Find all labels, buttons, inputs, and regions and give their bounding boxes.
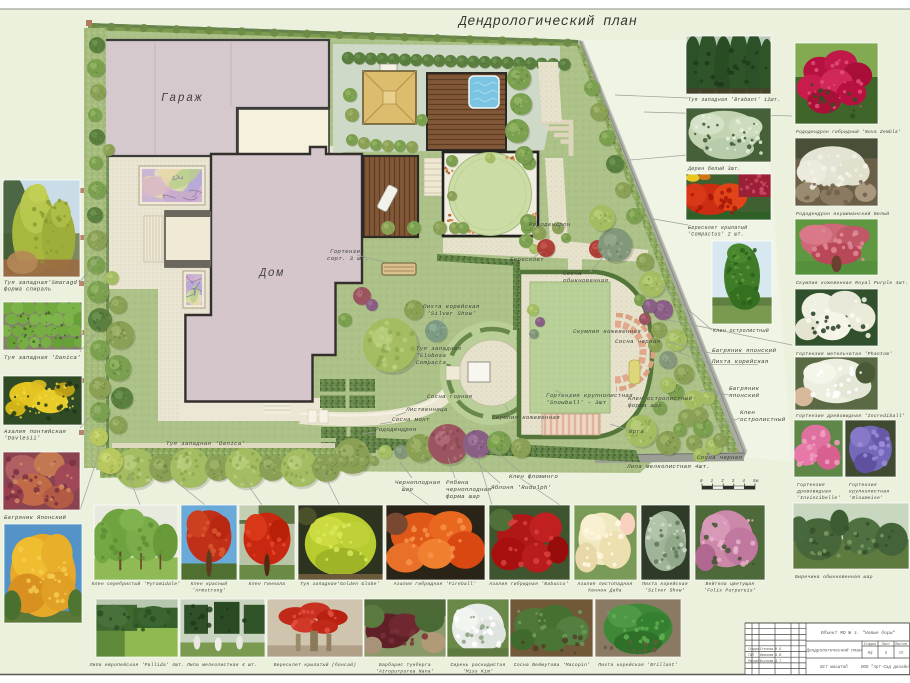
svg-text:Гортензия древовидная 'Incredi: Гортензия древовидная 'Incrediball' [796, 413, 905, 419]
svg-text:Иванова А.В.: Иванова А.В. [760, 653, 783, 657]
svg-text:Рододендрон якушиманский Белый: Рододендрон якушиманский Белый [796, 210, 889, 217]
svg-text:Лист: Лист [881, 643, 890, 647]
svg-text:Рододендрон: Рододендрон [375, 426, 417, 433]
svg-text:Черноплодная: Черноплодная [395, 479, 441, 486]
svg-text:Разраб: Разраб [748, 659, 760, 663]
svg-text:Сосна черная: Сосна черная [615, 338, 661, 345]
svg-text:'Miss Kim': 'Miss Kim' [463, 668, 494, 674]
svg-text:2: 2 [721, 480, 724, 484]
svg-text:крупнолистная: крупнолистная [849, 489, 889, 494]
svg-text:Клен серебристый 'Pyramidale': Клен серебристый 'Pyramidale' [92, 580, 181, 587]
svg-text:Сосна: Сосна [563, 270, 582, 277]
svg-text:Вейгела цветущая: Вейгела цветущая [706, 580, 755, 587]
svg-text:0: 0 [700, 480, 703, 484]
svg-text:Туя западная 'Danica': Туя западная 'Danica' [4, 354, 81, 361]
svg-text:обыкновенная: обыкновенная [563, 277, 609, 284]
svg-text:Ирга: Ирга [629, 428, 644, 435]
svg-text:Бересклет крылатый: Бересклет крылатый [688, 224, 747, 231]
svg-text:Юсупова Д.Т.: Юсупова Д.Т. [759, 659, 783, 663]
svg-text:Туя западная 'Danica': Туя западная 'Danica' [166, 440, 245, 447]
svg-text:форма шар: форма шар [628, 402, 662, 409]
svg-text:'Folis Purpureis': 'Folis Purpureis' [704, 587, 756, 593]
svg-text:Багряник японский: Багряник японский [712, 347, 776, 354]
svg-text:Азалия листопадная: Азалия листопадная [576, 581, 632, 587]
svg-text:форма спираль: форма спираль [4, 285, 52, 292]
svg-text:Клен остролистный: Клен остролистный [713, 327, 769, 334]
svg-text:'Compactus' 2 шт.: 'Compactus' 2 шт. [688, 231, 744, 237]
svg-text:Гараж: Гараж [161, 92, 203, 105]
svg-text:Гортензия метельчатая 'Phantom: Гортензия метельчатая 'Phantom' [796, 351, 893, 357]
svg-text:'Atropurpurea Nana': 'Atropurpurea Nana' [376, 668, 434, 674]
svg-text:'Invincibelle': 'Invincibelle' [797, 495, 841, 501]
svg-text:Туя западная 'Brabant' 12шт.: Туя западная 'Brabant' 12шт. [688, 97, 780, 103]
svg-text:Гортензия: Гортензия [849, 482, 877, 488]
svg-text:ООО "Арт-Сад дизайн": ООО "Арт-Сад дизайн" [861, 665, 910, 670]
svg-text:Дендрологический план: Дендрологический план [805, 649, 862, 654]
svg-text:АД: АД [867, 652, 873, 656]
svg-text:Сосна черная: Сосна черная [697, 454, 743, 461]
svg-text:японский: японский [728, 392, 759, 399]
svg-text:Пихта корейская: Пихта корейская [712, 358, 769, 365]
svg-text:15: 15 [899, 652, 904, 656]
svg-text:Сосна Веймутова 'Macopin': Сосна Веймутова 'Macopin' [514, 661, 590, 668]
svg-text:'Bloumeise': 'Bloumeise' [849, 495, 883, 501]
svg-text:Сосна монт: Сосна монт [392, 416, 430, 423]
svg-text:Липа мелколистная 4 шт.: Липа мелколистная 4 шт. [186, 662, 257, 668]
svg-text:Клен фломинго: Клен фломинго [509, 473, 558, 480]
svg-text:Багряник: Багряник [729, 385, 759, 392]
svg-text:Барбарис тунберга: Барбарис тунберга [379, 662, 431, 668]
svg-text:'Davlesii': 'Davlesii' [4, 434, 41, 441]
svg-text:Листов: Листов [894, 643, 907, 647]
svg-text:Рябина: Рябина [446, 479, 469, 486]
svg-text:Скумпия кожевенная: Скумпия кожевенная [573, 328, 641, 335]
svg-text:Липа мелколистная 4шт.: Липа мелколистная 4шт. [626, 463, 710, 470]
svg-text:'Armstrong': 'Armstrong' [192, 587, 226, 593]
svg-text:Яблоня 'Rudolph': Яблоня 'Rudolph' [490, 484, 551, 491]
svg-text:форма шар: форма шар [446, 493, 480, 500]
svg-text:Багряник Японский: Багряник Японский [4, 514, 67, 521]
svg-text:1: 1 [711, 480, 714, 484]
svg-text:Лиственница: Лиственница [405, 406, 448, 413]
svg-text:Сосна горная: Сосна горная [427, 393, 473, 400]
svg-text:Скумпия кожевенная Royal Purpl: Скумпия кожевенная Royal Purple 3шт. [796, 280, 908, 286]
svg-text:3: 3 [732, 480, 735, 484]
svg-text:ГАП: ГАП [748, 653, 754, 657]
svg-text:Биречина обыкновенная шар: Биречина обыкновенная шар [795, 574, 873, 580]
svg-text:древовидная: древовидная [796, 489, 831, 494]
svg-text:Объект МО № з. "Новые боры": Объект МО № з. "Новые боры" [821, 630, 896, 636]
svg-text:'Globosa: 'Globosa [416, 352, 446, 359]
svg-text:Туя западная: Туя западная [416, 345, 462, 352]
svg-text:Клен: Клен [740, 409, 755, 416]
svg-text:Вст масштаб: Вст масштаб [820, 665, 848, 670]
svg-text:'Snowball' - 3шт: 'Snowball' - 3шт [546, 399, 607, 406]
svg-text:Гортензия крупнолистная: Гортензия крупнолистная [546, 392, 633, 399]
svg-text:Азалия гибридная 'Nabucco': Азалия гибридная 'Nabucco' [488, 581, 568, 587]
svg-text:черноплодная: черноплодная [446, 486, 492, 493]
svg-text:Гортензия: Гортензия [797, 482, 825, 488]
svg-text:'Silver Show': 'Silver Show' [427, 310, 476, 317]
svg-text:Степная И.О.: Степная И.О. [760, 647, 783, 651]
svg-text:Пихта корейская: Пихта корейская [423, 303, 480, 310]
svg-text:Стадия: Стадия [748, 647, 760, 651]
svg-text:Клен остролистный: Клен остролистный [628, 395, 692, 402]
svg-text:Клен красный: Клен красный [191, 580, 228, 587]
svg-text:4: 4 [742, 480, 745, 484]
svg-text:Бересклет: Бересклет [510, 256, 544, 263]
svg-text:5м: 5м [753, 480, 759, 484]
svg-text:Кеннон Даба: Кеннон Даба [588, 587, 622, 593]
svg-text:Азалия гибридная 'Fireball': Азалия гибридная 'Fireball' [393, 581, 477, 587]
svg-text:Пихта корейская: Пихта корейская [642, 580, 688, 587]
svg-text:Сирень раскидистая: Сирень раскидистая [450, 662, 505, 668]
svg-text:'Silver Show': 'Silver Show' [645, 587, 685, 593]
svg-text:Скумпия кожевенная: Скумпия кожевенная [492, 414, 560, 421]
svg-text:Дом: Дом [258, 267, 284, 280]
svg-text:Пихта корейская 'Brillant': Пихта корейская 'Brillant' [598, 661, 677, 668]
svg-text:Дерен белый 3шт.: Дерен белый 3шт. [687, 165, 741, 172]
svg-text:Дендрологический план: Дендрологический план [457, 15, 638, 30]
svg-text:Гортензия: Гортензия [330, 248, 364, 255]
svg-text:Клен Гиннала: Клен Гиннала [249, 581, 286, 587]
svg-text:Липа европейская 'Pallida' 4шт: Липа европейская 'Pallida' 4шт. [89, 661, 185, 668]
svg-text:Бересклет крылатый (бонсай): Бересклет крылатый (бонсай) [274, 661, 357, 668]
svg-text:Туя западная'Golden Globe': Туя западная'Golden Globe' [300, 581, 379, 587]
svg-text:Рододендрон гибридный 'Nova Ze: Рододендрон гибридный 'Nova Zembla' [796, 128, 901, 135]
svg-text:Стадия: Стадия [864, 643, 876, 647]
svg-text:остролистный: остролистный [740, 416, 786, 423]
